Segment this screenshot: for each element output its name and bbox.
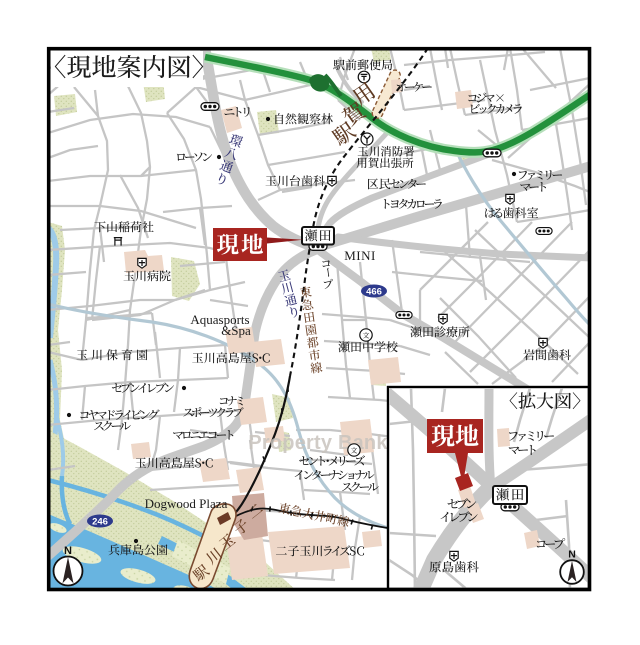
svg-text:466: 466 bbox=[366, 286, 382, 297]
svg-text:&Spa: &Spa bbox=[221, 323, 251, 338]
svg-text:MINI: MINI bbox=[344, 248, 376, 263]
svg-text:N: N bbox=[64, 545, 72, 557]
svg-text:N: N bbox=[568, 549, 576, 561]
svg-text:Dogwood Plaza: Dogwood Plaza bbox=[145, 496, 228, 511]
svg-text:Property Bank: Property Bank bbox=[248, 432, 388, 454]
svg-text:246: 246 bbox=[92, 516, 108, 527]
